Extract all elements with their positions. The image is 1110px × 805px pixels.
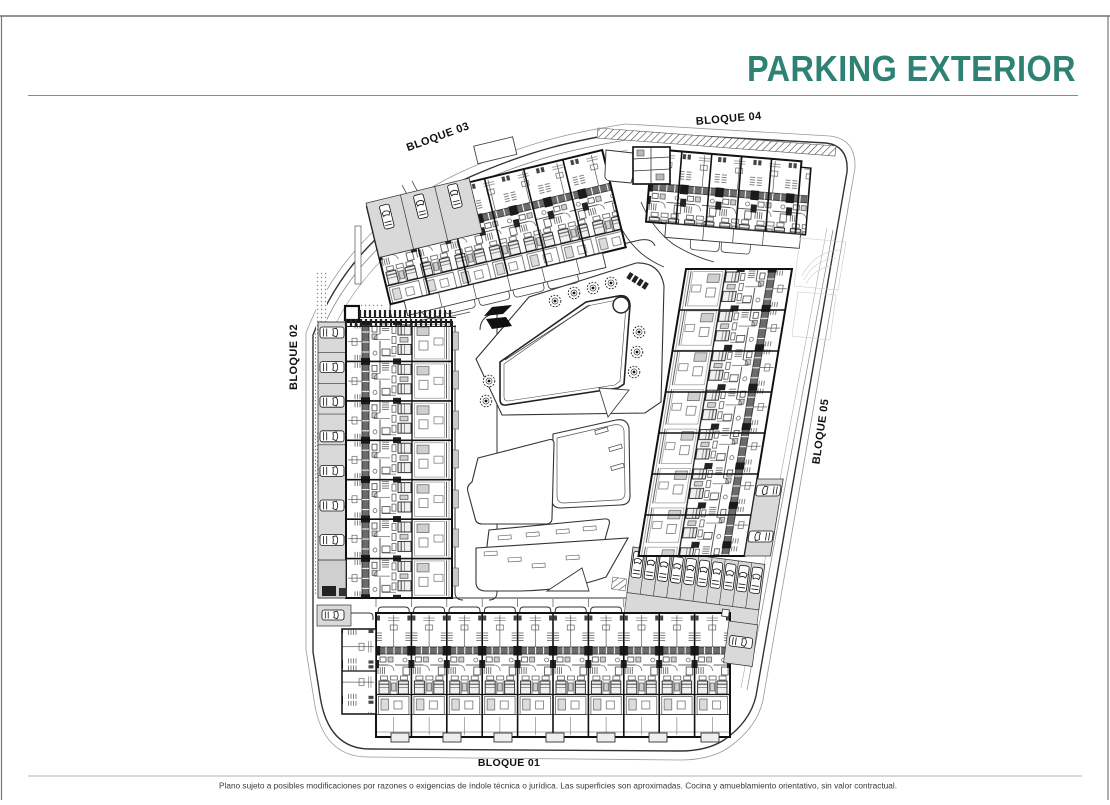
svg-text:PARKING EXTERIOR: PARKING EXTERIOR — [747, 48, 1076, 89]
svg-text:Plano sujeto a posibles modifi: Plano sujeto a posibles modificaciones p… — [219, 782, 897, 791]
svg-text:BLOQUE 01: BLOQUE 01 — [478, 757, 540, 769]
svg-text:BLOQUE 02: BLOQUE 02 — [288, 324, 300, 390]
